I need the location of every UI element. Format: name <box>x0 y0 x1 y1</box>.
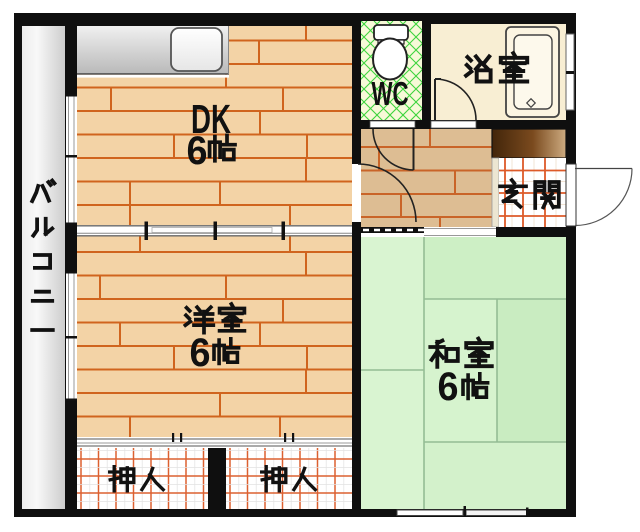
svg-text:WC: WC <box>372 75 409 112</box>
svg-text:6: 6 <box>190 331 211 375</box>
svg-text:6: 6 <box>187 129 208 173</box>
svg-text:6: 6 <box>438 365 459 409</box>
